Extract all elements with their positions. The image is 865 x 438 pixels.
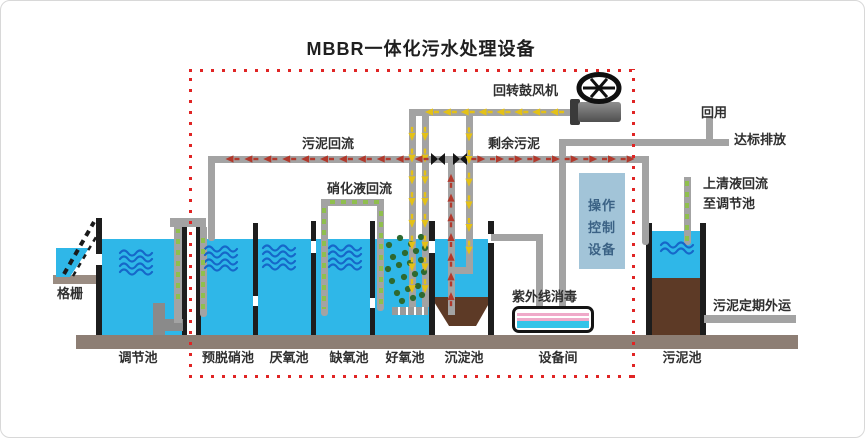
sludge-return-drop-pipe <box>208 163 215 241</box>
label-reuse: 回用 <box>701 106 727 121</box>
label-excess-sludge: 剩余污泥 <box>488 137 540 152</box>
discharge-pipe <box>559 139 729 146</box>
pump-riser-pipe <box>174 223 182 323</box>
label-supernatant-return-line1: 上清液回流 <box>703 177 768 192</box>
sludge-tank-sludge <box>652 278 700 335</box>
tank-label-anoxic: 缺氧池 <box>329 351 368 366</box>
label-blower: 回转鼓风机 <box>493 84 558 99</box>
control-cabinet-text: 控制 <box>579 217 625 236</box>
nitrified-recycle-pipe-top <box>321 199 384 206</box>
tank-wall <box>370 308 375 335</box>
base-platform <box>76 335 798 349</box>
control-cabinet-text: 操作 <box>579 195 625 214</box>
uv-outlet-pipe <box>559 146 566 308</box>
tank-label-predenitrification: 预脱硝池 <box>202 351 254 366</box>
sludge-disposal-pipe <box>704 315 796 323</box>
valve-icon <box>453 153 467 166</box>
label-uv-disinfection: 紫外线消毒 <box>512 290 577 305</box>
sedimentation-sludge-hopper <box>435 297 489 326</box>
nitrified-recycle-pipe-left <box>321 199 328 316</box>
tank-wall <box>253 306 258 335</box>
label-sludge-removal: 污泥定期外运 <box>713 299 791 314</box>
tank-water-sludge <box>652 231 700 278</box>
valve-icon <box>431 153 445 166</box>
tank-wall <box>253 223 258 296</box>
flow-annotations-overlay <box>1 1 864 437</box>
tank-wall <box>311 253 316 335</box>
feed-drop-pipe <box>200 227 207 317</box>
tank-label-equipment-room: 设备间 <box>538 351 577 366</box>
tank-wall <box>488 221 494 234</box>
tank-water-anaerobic <box>258 239 311 335</box>
air-diffuser <box>392 307 428 315</box>
tank-wall <box>488 243 494 335</box>
uv-disinfection-unit <box>512 306 594 333</box>
tank-label-sludge: 污泥池 <box>662 351 701 366</box>
inlet-water <box>56 248 89 277</box>
tank-wall <box>96 265 102 335</box>
uv-water-channel <box>517 321 589 328</box>
supernatant-return-pipe <box>684 177 691 245</box>
air-drop-pipe-1 <box>409 109 416 307</box>
tank-wall <box>429 221 435 241</box>
control-cabinet: 操作 控制 设备 <box>579 173 625 269</box>
label-discharge: 达标排放 <box>734 133 786 148</box>
tank-label-sedimentation: 沉淀池 <box>444 351 483 366</box>
tank-wall <box>370 221 375 298</box>
sludge-riser-pipe <box>448 163 455 315</box>
tank-wall <box>311 221 316 241</box>
tank-label-aerobic: 好氧池 <box>385 351 424 366</box>
tank-wall <box>96 218 102 254</box>
air-main-pipe <box>412 109 578 116</box>
tank-label-regulating: 调节池 <box>118 351 157 366</box>
tank-label-anaerobic: 厌氧池 <box>269 351 308 366</box>
label-nitrified-recycle: 硝化液回流 <box>327 182 392 197</box>
tank-water-predenitrification <box>201 239 253 335</box>
label-supernatant-return-line2: 至调节池 <box>703 197 755 212</box>
tank-wall <box>429 253 435 335</box>
label-sludge-return: 污泥回流 <box>302 137 354 152</box>
diagram-title: MBBR一体化污水处理设备 <box>307 35 536 61</box>
control-cabinet-text: 设备 <box>579 239 625 258</box>
airlift-air-pipe <box>466 116 473 272</box>
nitrified-recycle-pipe-right <box>377 199 384 311</box>
excess-sludge-drop-pipe <box>642 163 649 245</box>
label-grid: 格栅 <box>57 287 83 302</box>
blower-body <box>578 102 621 122</box>
air-drop-pipe-2 <box>422 116 429 307</box>
crossover-pipe <box>170 218 206 227</box>
process-diagram: MBBR一体化污水处理设备 <box>0 0 865 438</box>
